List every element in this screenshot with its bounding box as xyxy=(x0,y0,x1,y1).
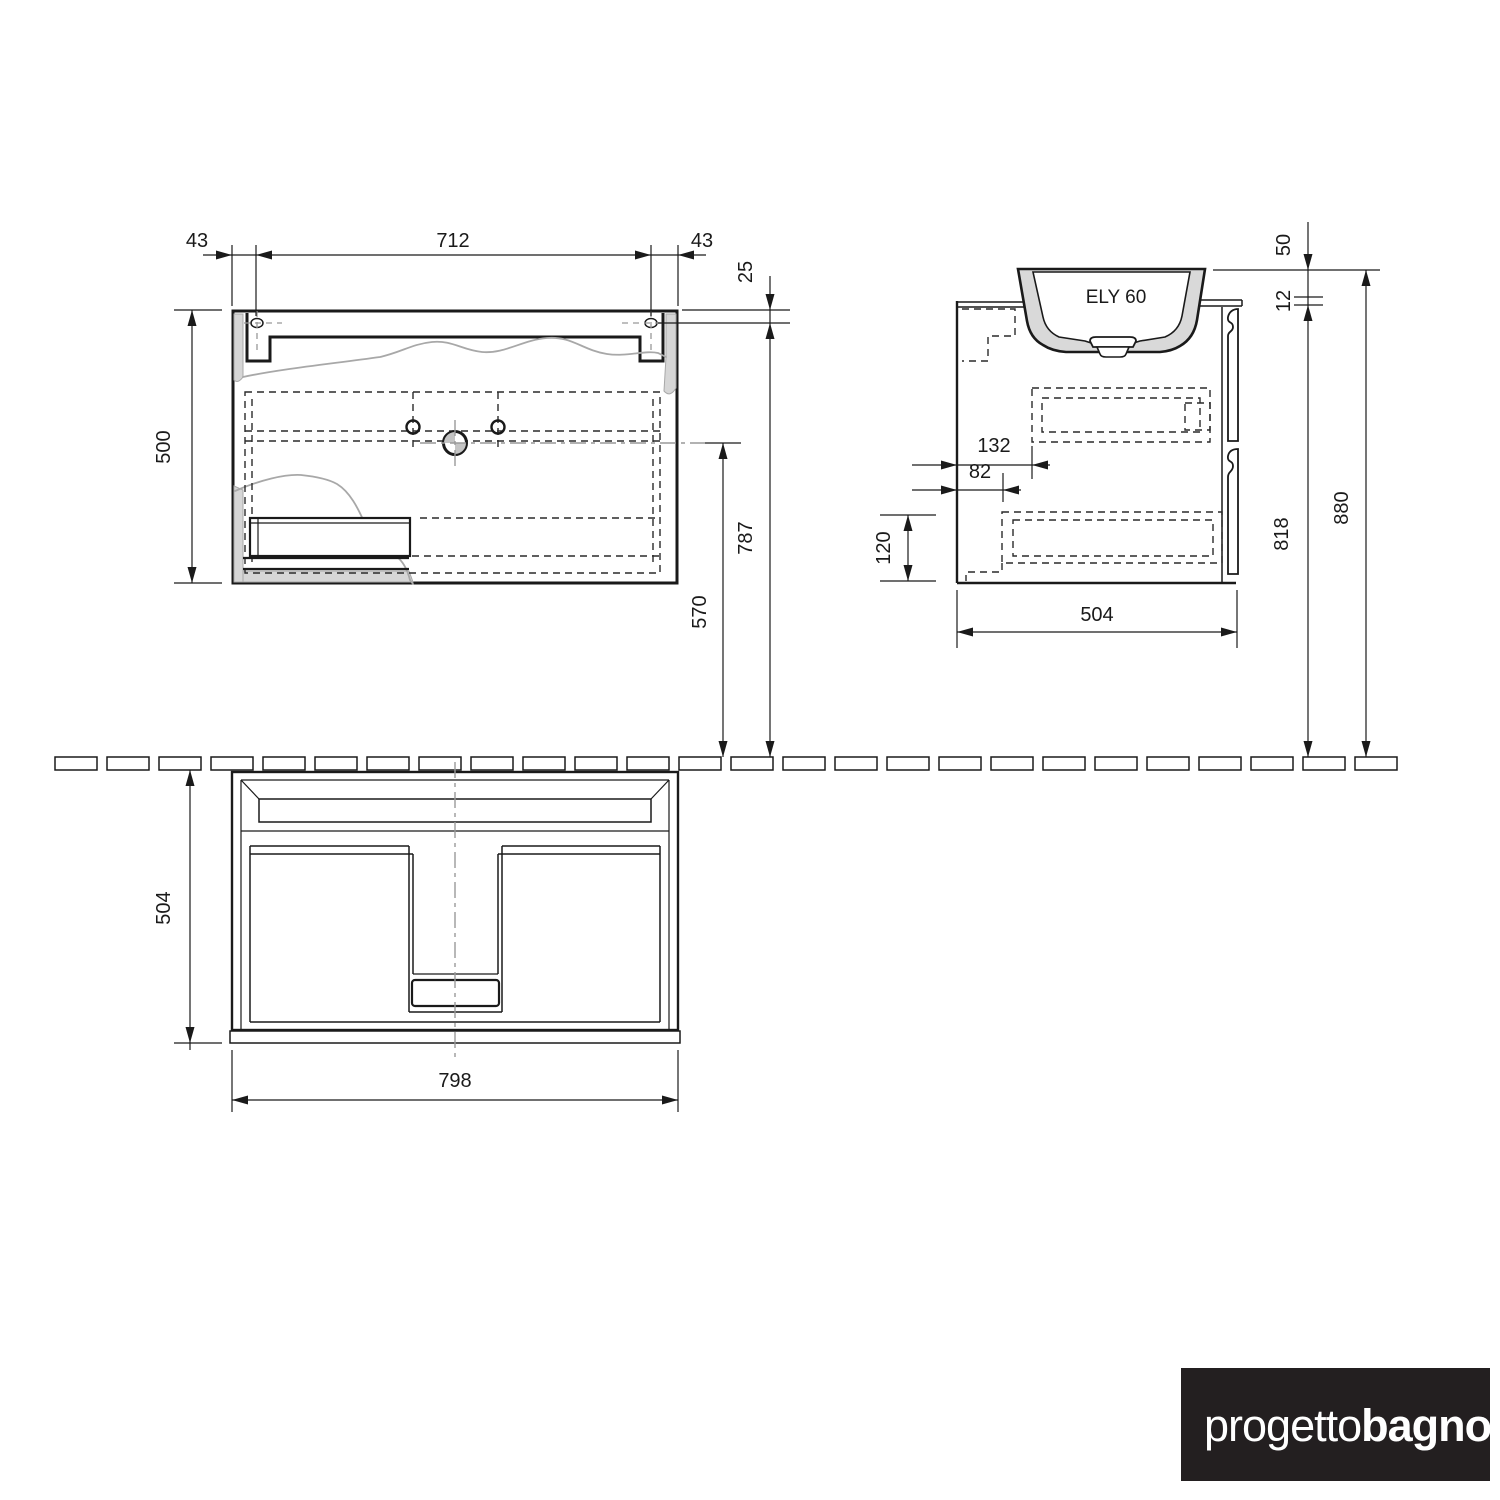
basin-plan-view xyxy=(233,311,677,584)
wall-tile xyxy=(783,757,825,770)
wall-tile xyxy=(991,757,1033,770)
wall-tile xyxy=(1095,757,1137,770)
bevel xyxy=(651,780,669,799)
drain-quadrant xyxy=(444,432,455,443)
wall-tile xyxy=(55,757,97,770)
wall-tile xyxy=(107,757,149,770)
dimensions: 43 712 43 500 25 787 570 132 xyxy=(153,222,1380,1112)
wall-tile xyxy=(263,757,305,770)
shelf-plan xyxy=(250,518,410,556)
dim-clearance-back: 132 xyxy=(977,435,1010,457)
wall-tile xyxy=(523,757,565,770)
dim-overhang-left: 43 xyxy=(186,230,208,252)
hidden-wall-bracket xyxy=(962,309,1015,361)
dim-hole-inset: 25 xyxy=(735,261,757,283)
wall-tile xyxy=(1303,757,1345,770)
dim-base-height: 120 xyxy=(873,531,895,564)
wall-tile xyxy=(1043,757,1085,770)
hidden-drawer-top-inner xyxy=(1042,398,1200,432)
dim-hole-span: 712 xyxy=(436,230,469,252)
wall-tile xyxy=(1147,757,1189,770)
wall-tile xyxy=(367,757,409,770)
drain-section xyxy=(1090,337,1136,347)
wall-tile xyxy=(211,757,253,770)
drain-trap xyxy=(1097,347,1129,357)
brand-logo: progettobagno xyxy=(1181,1368,1491,1481)
hidden-line xyxy=(966,563,1002,581)
section-cut-left-lower xyxy=(234,486,243,582)
logo-text: progettobagno xyxy=(1204,1400,1491,1451)
logo-text-regular: progetto xyxy=(1204,1400,1361,1451)
drain-quadrant xyxy=(455,443,466,454)
technical-drawing: ELY 60 xyxy=(0,0,1500,1500)
dim-total-height: 880 xyxy=(1331,491,1353,524)
wall-tile xyxy=(887,757,929,770)
basin-bowl xyxy=(1033,272,1190,346)
dim-body-height: 818 xyxy=(1271,517,1293,550)
dim-basin-depth: 500 xyxy=(153,430,175,463)
cabinet-plan-view xyxy=(230,762,680,1062)
hidden-drawer-bottom-inner xyxy=(1013,520,1213,556)
wall-tile xyxy=(835,757,877,770)
wall-tile xyxy=(627,757,669,770)
wall-tile xyxy=(1199,757,1241,770)
dim-basin-rim: 50 xyxy=(1273,234,1295,256)
wall-tile xyxy=(575,757,617,770)
wall-hatch xyxy=(55,757,1397,770)
basin-rim-step xyxy=(247,313,663,361)
bevel xyxy=(241,780,259,799)
wall-tile xyxy=(679,757,721,770)
dim-cabinet-width: 798 xyxy=(438,1070,471,1092)
dim-clearance-front: 82 xyxy=(969,461,991,483)
dim-drain-height: 570 xyxy=(689,595,711,628)
wall-tile xyxy=(1355,757,1397,770)
dim-overhang-right: 43 xyxy=(691,230,713,252)
break-wave-upper xyxy=(243,338,666,377)
model-label: ELY 60 xyxy=(1086,287,1147,308)
wall-tile xyxy=(731,757,773,770)
section-cut-right xyxy=(664,314,676,394)
logo-text-bold: bagno xyxy=(1361,1400,1491,1451)
drawer-front-top xyxy=(1228,309,1238,441)
hidden-runner xyxy=(1185,403,1210,430)
hidden-drawer-top xyxy=(1032,388,1210,442)
dim-top-gap: 12 xyxy=(1273,290,1295,312)
side-view: ELY 60 xyxy=(957,269,1242,583)
drawer-front-bottom xyxy=(1228,449,1238,574)
wall-tile xyxy=(315,757,357,770)
wall-tile xyxy=(939,757,981,770)
dim-side-depth: 504 xyxy=(1080,604,1113,626)
wall-tile xyxy=(471,757,513,770)
dim-cabinet-depth: 504 xyxy=(153,891,175,924)
section-cut-left xyxy=(234,314,243,381)
dim-hole-height: 787 xyxy=(735,521,757,554)
wall-tile xyxy=(1251,757,1293,770)
drawing-page: ELY 60 xyxy=(0,0,1500,1500)
wall-tile xyxy=(159,757,201,770)
